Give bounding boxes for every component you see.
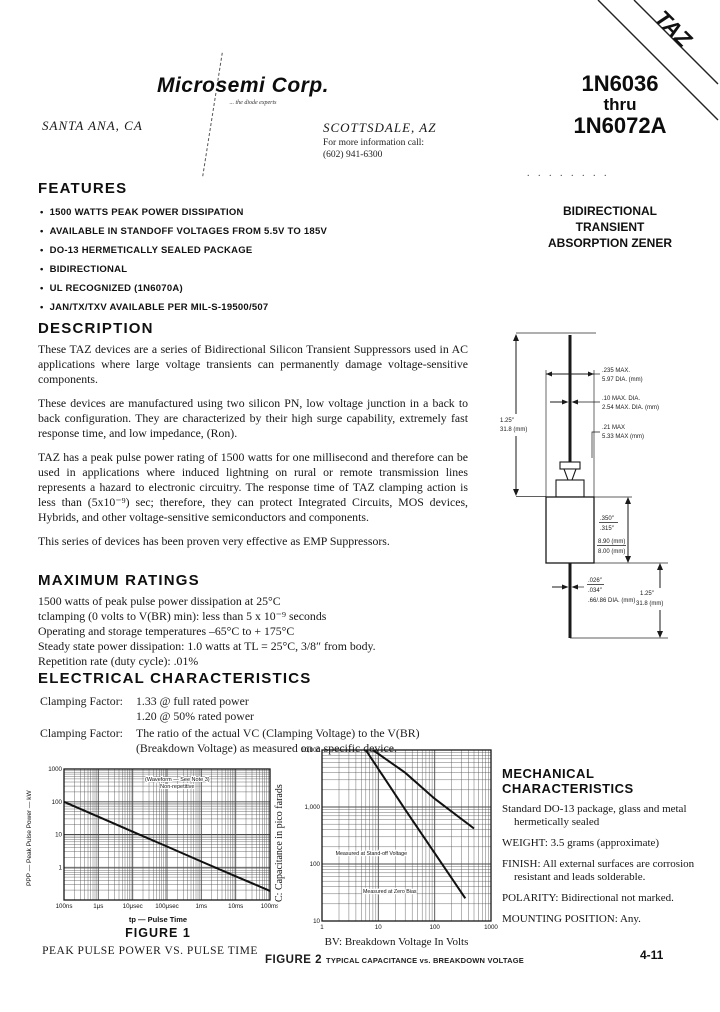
svg-text:1: 1 [320, 924, 324, 931]
figure1-y-axis-label: PPP — Peak Pulse Power — kW [26, 768, 33, 908]
figure2-caption-row: FIGURE 2 TYPICAL CAPACITANCE vs. BREAKDO… [262, 950, 527, 968]
svg-text:10: 10 [375, 924, 382, 931]
mechanical-item: MOUNTING POSITION: Any. [502, 913, 714, 926]
device-subtitle: BIDIRECTIONAL TRANSIENT ABSORPTION ZENER [505, 203, 715, 251]
description-paragraph: These TAZ devices are a series of Bidire… [38, 342, 468, 387]
figure1-x-axis-label: tp — Pulse Time [38, 915, 278, 924]
dim-lead-dia-mm: 2.54 MAX. DIA. (mm) [602, 405, 659, 411]
maximum-ratings-title: MAXIMUM RATINGS [38, 572, 200, 589]
svg-text:100ns: 100ns [56, 903, 73, 910]
location-scottsdale: SCOTTSDALE, AZ [323, 120, 436, 136]
logo-tagline: ... the diode experts [208, 100, 298, 106]
page-number: 4-11 [640, 948, 663, 962]
description-body: These TAZ devices are a series of Bidire… [38, 342, 468, 558]
logo-slash-line [202, 53, 223, 177]
svg-text:10μsec: 10μsec [123, 903, 143, 910]
contact-line-1: For more information call: [323, 138, 424, 150]
taz-banner-text: TAZ [650, 5, 698, 53]
figure2-chart: 110100100010,0001,00010010Measured at Ze… [294, 746, 499, 934]
subtitle-line-2: TRANSIENT [505, 219, 715, 235]
dim-lead2-dia-max: .026″ [588, 578, 603, 584]
figure2-y-axis-label: C: Capacitance in pico farads [274, 754, 285, 932]
electrical-title: ELECTRICAL CHARACTERISTICS [38, 670, 311, 687]
contact-line-2: (602) 941-6300 [323, 150, 424, 162]
bullet-icon: • [40, 283, 44, 294]
rating-line: tclamping (0 volts to V(BR) min): less t… [38, 609, 478, 624]
svg-text:10: 10 [55, 832, 62, 839]
feature-item: •JAN/TX/TXV AVAILABLE PER MIL-S-19500/50… [40, 298, 327, 317]
figure2-subcaption: TYPICAL CAPACITANCE vs. BREAKDOWN VOLTAG… [326, 956, 524, 965]
svg-text:1μs: 1μs [93, 903, 103, 910]
svg-text:Measured at Zero Bias: Measured at Zero Bias [363, 889, 417, 895]
bullet-icon: • [40, 245, 44, 256]
bullet-icon: • [40, 226, 44, 237]
dim-lead-dia-in: .10 MAX. DIA. [602, 396, 640, 402]
mechanical-item: Standard DO-13 package, glass and metal … [502, 803, 714, 829]
rating-line: Steady state power dissipation: 1.0 watt… [38, 639, 478, 654]
dim-top-lead-length-mm: 31.8 (mm) [500, 427, 527, 433]
dim-bottom-lead-length-mm: 31.8 (mm) [636, 601, 663, 607]
mechanical-item: FINISH: All external surfaces are corros… [502, 858, 714, 884]
company-logo: Microsemi Corp. [148, 74, 338, 98]
clamping-value-full: 1.33 @ full rated power [136, 694, 254, 709]
rating-line: 1500 watts of peak pulse power dissipati… [38, 594, 478, 609]
feature-item: •AVAILABLE IN STANDOFF VOLTAGES FROM 5.5… [40, 222, 327, 241]
svg-text:100μsec: 100μsec [155, 903, 179, 910]
clamping-factor-values: 1.33 @ full rated power 1.20 @ 50% rated… [136, 694, 254, 725]
dim-lead2-dia-mm: .66/.86 DIA. (mm) [588, 598, 635, 604]
clamping-factor-label-2: Clamping Factor: [40, 726, 123, 741]
rating-line: Operating and storage temperatures –65°C… [38, 624, 478, 639]
figure1-subcaption: PEAK PULSE POWER VS. PULSE TIME [0, 945, 300, 957]
svg-text:100: 100 [430, 924, 441, 931]
figure2-block: C: Capacitance in pico farads 1101001000… [272, 746, 517, 964]
contact-info: For more information call: (602) 941-630… [323, 138, 424, 162]
mechanical-title-line-2: CHARACTERISTICS [502, 781, 714, 796]
feature-item: •DO-13 HERMETICALLY SEALED PACKAGE [40, 241, 327, 260]
dim-neck-in: .21 MAX [602, 425, 625, 431]
figure1-caption: FIGURE 1 [38, 926, 278, 940]
subtitle-line-1: BIDIRECTIONAL [505, 203, 715, 219]
feature-item: •1500 WATTS PEAK POWER DISSIPATION [40, 203, 327, 222]
dim-body-len-in-max: .350″ [600, 516, 615, 522]
description-paragraph: TAZ has a peak pulse power rating of 150… [38, 450, 468, 525]
mechanical-item: POLARITY: Bidirectional not marked. [502, 892, 714, 905]
package-outline-diagram: 1.25″ 31.8 (mm) .235 MAX. 5.97 DIA. (mm)… [500, 330, 718, 666]
feature-item: •UL RECOGNIZED (1N6070A) [40, 279, 327, 298]
dim-body-len-mm-max: 8.90 (mm) [598, 539, 625, 545]
bullet-icon: • [40, 302, 44, 313]
figure1-block: PPP — Peak Pulse Power — kW 100ns1μs10μs… [26, 764, 282, 969]
description-paragraph: These devices are manufactured using two… [38, 396, 468, 441]
dotted-separator: . . . . . . . . [527, 168, 610, 179]
svg-text:10: 10 [313, 918, 320, 925]
dim-body-len-in-min: .315″ [600, 526, 615, 532]
figure2-caption: FIGURE 2 [265, 954, 322, 966]
svg-text:1,000: 1,000 [305, 804, 321, 811]
mechanical-section: MECHANICAL CHARACTERISTICS Standard DO-1… [502, 766, 714, 934]
description-title: DESCRIPTION [38, 320, 154, 337]
description-paragraph: This series of devices has been proven v… [38, 534, 468, 549]
location-santa-ana: SANTA ANA, CA [42, 118, 143, 134]
datasheet-page: Microsemi Corp. ... the diode experts SA… [0, 0, 720, 1012]
svg-text:Non-repetitive: Non-repetitive [160, 784, 194, 790]
dim-body-dia-in: .235 MAX. [602, 368, 630, 374]
maximum-ratings-body: 1500 watts of peak pulse power dissipati… [38, 594, 478, 669]
svg-text:100: 100 [52, 799, 63, 806]
svg-text:10ms: 10ms [228, 903, 243, 910]
subtitle-line-3: ABSORPTION ZENER [505, 235, 715, 251]
mechanical-title-line-1: MECHANICAL [502, 766, 714, 781]
mechanical-item: WEIGHT: 3.5 grams (approximate) [502, 837, 714, 850]
features-title: FEATURES [38, 180, 127, 197]
svg-text:10,000: 10,000 [301, 747, 320, 754]
svg-text:1ms: 1ms [195, 903, 207, 910]
svg-text:1000: 1000 [48, 766, 62, 773]
svg-text:(Waveform — See Note 3): (Waveform — See Note 3) [145, 777, 210, 783]
clamping-value-half: 1.20 @ 50% rated power [136, 709, 254, 724]
dim-bottom-lead-length-in: 1.25″ [640, 591, 655, 597]
features-list: •1500 WATTS PEAK POWER DISSIPATION •AVAI… [40, 203, 327, 317]
rating-line: Repetition rate (duty cycle): .01% [38, 654, 478, 669]
corner-banner: TAZ [590, 0, 720, 130]
bullet-icon: • [40, 207, 44, 218]
dim-lead2-dia-min: .034″ [588, 588, 603, 594]
svg-text:1: 1 [59, 865, 63, 872]
svg-text:Measured at Stand-off Voltage: Measured at Stand-off Voltage [336, 851, 408, 857]
dim-body-len-mm-min: 8.00 (mm) [598, 549, 625, 555]
dim-neck-mm: 5.33 MAX (mm) [602, 434, 644, 440]
dim-body-dia-mm: 5.97 DIA. (mm) [602, 377, 643, 383]
dim-top-lead-length-in: 1.25″ [500, 418, 515, 424]
bullet-icon: • [40, 264, 44, 275]
svg-text:100: 100 [310, 861, 321, 868]
clamping-factor-label-1: Clamping Factor: [40, 694, 123, 709]
svg-text:1000: 1000 [484, 924, 498, 931]
figure1-chart: 100ns1μs10μsec100μsec1ms10ms100ms1000100… [38, 764, 278, 912]
feature-item: •BIDIRECTIONAL [40, 260, 327, 279]
figure2-x-axis-label: BV: Breakdown Voltage In Volts [294, 936, 499, 948]
